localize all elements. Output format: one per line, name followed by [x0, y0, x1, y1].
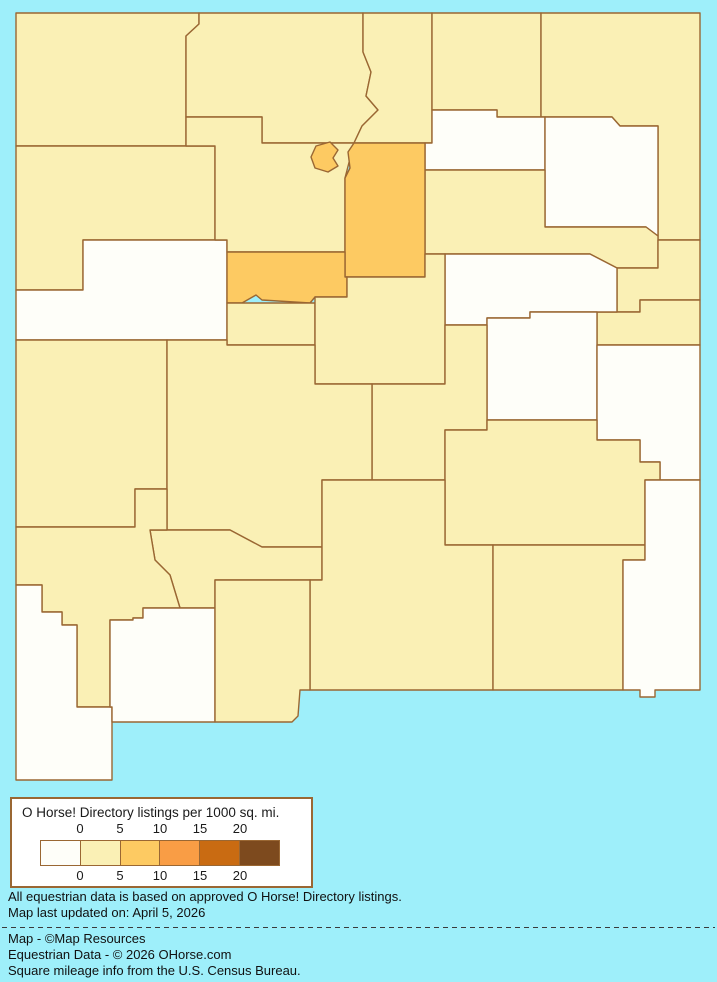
legend-tick-top-15: 15	[180, 821, 220, 836]
county-los-alamos	[311, 142, 338, 172]
credit-map: Map - ©Map Resources	[8, 931, 145, 946]
legend-swatch-2	[120, 840, 161, 866]
legend-tick-bottom-20: 20	[220, 868, 260, 883]
county-san-juan	[16, 13, 199, 146]
county-valencia	[227, 303, 315, 345]
county-mora	[425, 110, 545, 170]
legend-swatch-0	[40, 840, 81, 866]
legend-title: O Horse! Directory listings per 1000 sq.…	[22, 805, 279, 820]
legend-swatch-1	[80, 840, 121, 866]
note-data-source: All equestrian data is based on approved…	[8, 889, 402, 904]
legend-tick-top-20: 20	[220, 821, 260, 836]
note-last-updated: Map last updated on: April 5, 2026	[8, 905, 205, 920]
page: O Horse! Directory listings per 1000 sq.…	[0, 0, 717, 982]
credit-square-mileage: Square mileage info from the U.S. Census…	[8, 963, 301, 978]
legend-tick-bottom-0: 0	[60, 868, 100, 883]
dashed-divider	[2, 927, 715, 928]
legend-color-ramp	[40, 840, 280, 866]
county-eddy	[493, 545, 645, 690]
legend-tick-top-10: 10	[140, 821, 180, 836]
credit-equestrian-data: Equestrian Data - © 2026 OHorse.com	[8, 947, 231, 962]
county-santa-fe	[345, 143, 425, 277]
legend-swatch-5	[239, 840, 280, 866]
county-luna	[110, 608, 215, 722]
legend-swatch-3	[159, 840, 200, 866]
new-mexico-county-choropleth-map	[0, 0, 717, 790]
legend-tick-top-5: 5	[100, 821, 140, 836]
legend-tick-bottom-5: 5	[100, 868, 140, 883]
legend-tick-bottom-15: 15	[180, 868, 220, 883]
county-colfax	[432, 13, 541, 117]
legend-tick-top-0: 0	[60, 821, 100, 836]
county-dona-ana	[215, 580, 310, 722]
county-bernalillo	[227, 252, 347, 303]
legend-tick-bottom-10: 10	[140, 868, 180, 883]
county-harding	[545, 117, 658, 236]
legend-swatch-4	[199, 840, 240, 866]
county-de-baca	[487, 312, 597, 420]
